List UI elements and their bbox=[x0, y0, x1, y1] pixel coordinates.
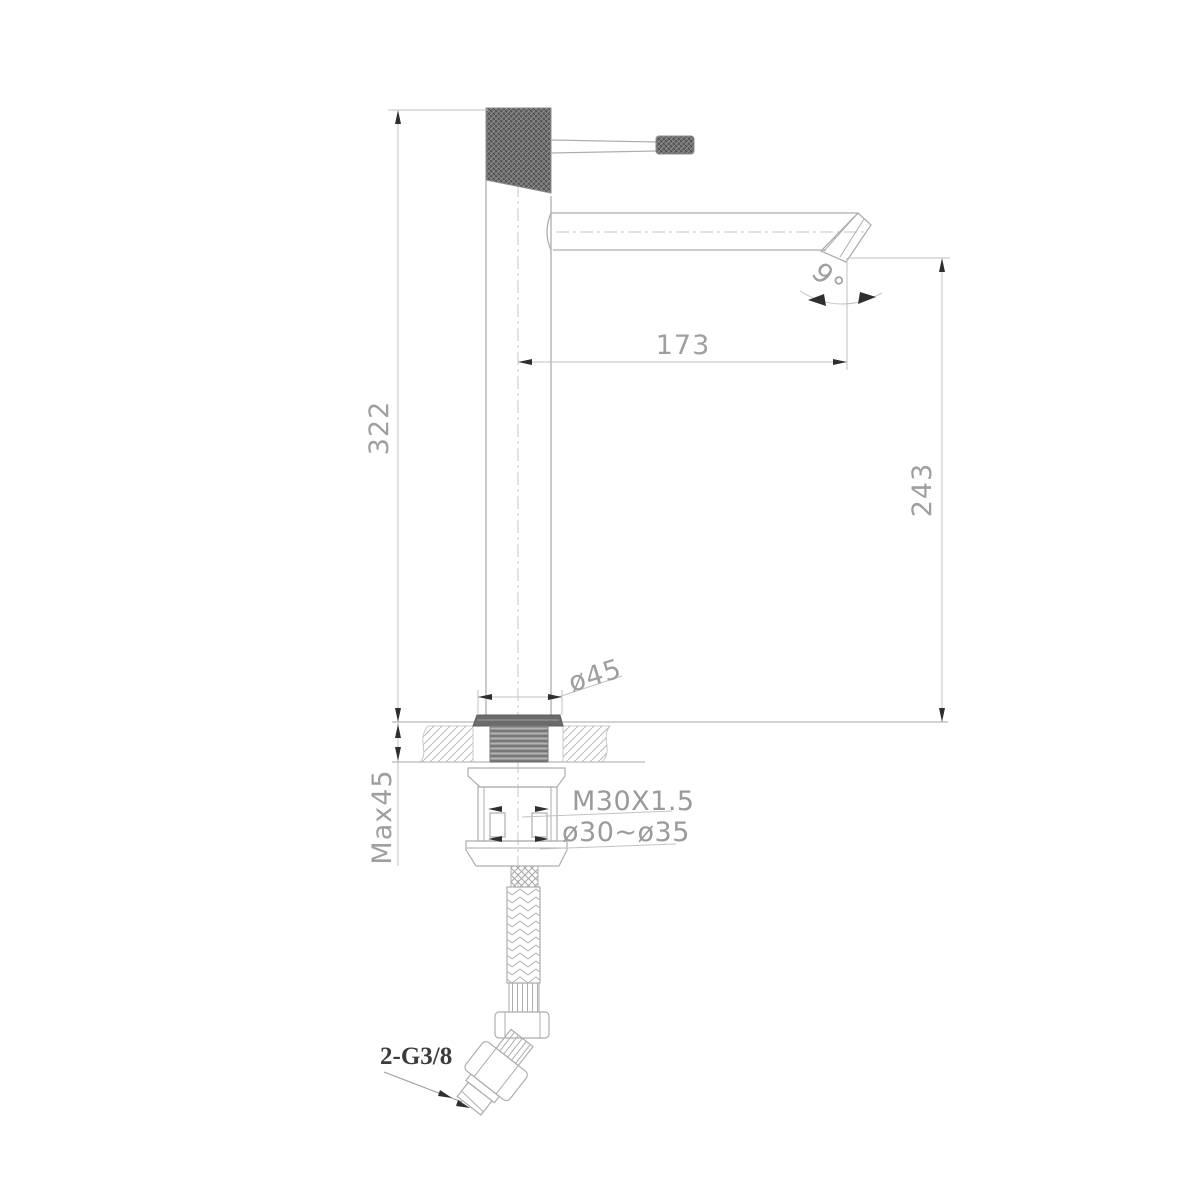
dim-322: 322 bbox=[364, 110, 488, 722]
deck-section bbox=[392, 722, 948, 762]
lever-knurl-tip bbox=[656, 136, 694, 154]
drawing-canvas: 322 Max45 173 243 9° ø45 bbox=[0, 0, 1200, 1200]
technical-drawing: 322 Max45 173 243 9° ø45 bbox=[0, 0, 1200, 1200]
dim-max45-label: Max45 bbox=[367, 769, 398, 864]
dim-angle: 9° bbox=[800, 257, 882, 306]
deck-hatch-right bbox=[563, 726, 610, 762]
faucet-handle-knurl bbox=[486, 108, 551, 193]
dim-322-label: 322 bbox=[364, 401, 395, 456]
handle-lever bbox=[551, 136, 694, 154]
spout-nozzle bbox=[821, 213, 871, 262]
dim-dia45-label: ø45 bbox=[565, 653, 626, 698]
label-g38: 2-G3/8 bbox=[380, 1043, 470, 1108]
label-g38-text: 2-G3/8 bbox=[380, 1043, 452, 1070]
dim-243: 243 bbox=[850, 258, 950, 722]
supply-hose bbox=[447, 866, 549, 1123]
label-m30: M30X1.5 bbox=[522, 786, 695, 817]
braided-hose bbox=[507, 887, 540, 983]
label-hole-range-text: ø30~ø35 bbox=[562, 817, 690, 848]
hose-coupling bbox=[511, 866, 538, 887]
threaded-shank bbox=[490, 726, 548, 762]
mounting-nut bbox=[466, 787, 567, 866]
dim-dia45: ø45 bbox=[478, 653, 626, 715]
dim-173-label: 173 bbox=[656, 330, 711, 361]
deck-hatch-left bbox=[420, 726, 473, 762]
label-hole-range: ø30~ø35 bbox=[540, 817, 690, 849]
dim-max45: Max45 bbox=[367, 722, 401, 866]
dim-243-label: 243 bbox=[907, 463, 938, 518]
centerlines bbox=[518, 112, 866, 888]
hose-nut bbox=[495, 1012, 549, 1038]
dim-173: 173 bbox=[518, 258, 847, 370]
mounting-hardware bbox=[466, 715, 567, 866]
washer bbox=[468, 768, 565, 787]
dim-angle-label: 9° bbox=[805, 257, 850, 302]
faucet bbox=[486, 108, 871, 715]
hose-collar bbox=[509, 983, 539, 1012]
